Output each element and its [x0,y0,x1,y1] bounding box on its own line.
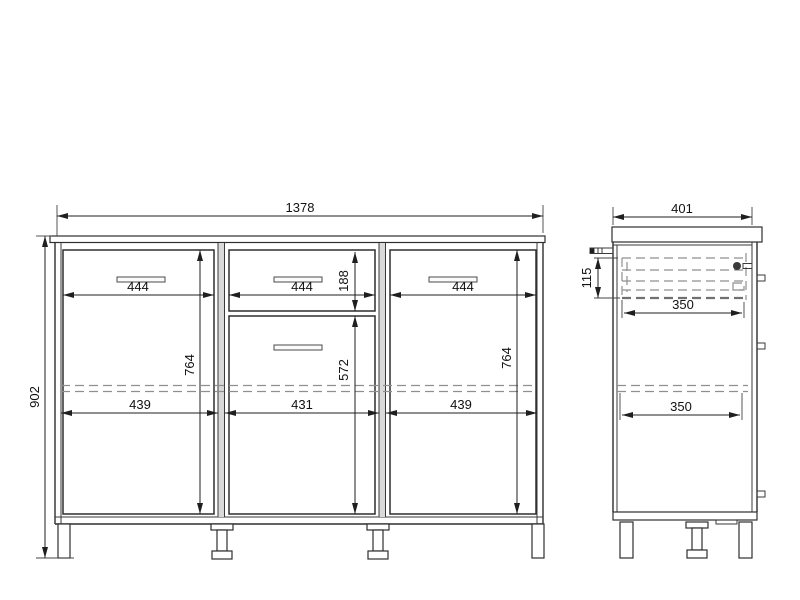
dim-label-572: 572 [336,359,351,381]
dim-overall-depth: 401 [613,201,752,225]
side-back-leg [739,522,752,558]
dim-label-902: 902 [27,386,42,408]
drawer-slide-bracket [733,283,744,290]
side-hinge-tab-middle [757,343,765,349]
front-left-leg [58,524,70,558]
side-legs [620,520,752,558]
side-drawer-handle [590,248,613,254]
cam-screw-icon [733,262,741,270]
front-top-panel [50,236,545,243]
dim-label-444-middle: 444 [291,279,313,294]
front-divider-left [218,243,225,517]
dim-overall-width: 1378 [57,200,543,236]
front-adjustable-foot-2 [367,524,389,559]
side-front-leg [620,522,633,558]
dim-label-439-right: 439 [450,397,472,412]
dim-label-1378: 1378 [286,200,315,215]
front-legs [58,524,544,559]
technical-drawing-canvas: 1378 902 444 444 444 [0,0,800,600]
dim-label-350-top: 350 [672,297,694,312]
dim-label-439-left: 439 [129,397,151,412]
drawing-page: 1378 902 444 444 444 [0,0,800,600]
dim-label-401: 401 [671,201,693,216]
front-adjustable-foot-1 [211,524,233,559]
dim-label-115: 115 [579,268,594,289]
side-carcass [612,227,765,520]
middle-door-handle [274,345,322,350]
front-divider-right [379,243,386,517]
side-shelf-hidden-lines [617,386,748,392]
front-view: 1378 902 444 444 444 [27,200,545,559]
dim-label-431: 431 [291,397,313,412]
dim-shelf-depth: 350 [620,393,742,420]
dim-label-764-left: 764 [182,354,197,376]
dim-label-188: 188 [336,270,351,292]
side-view: 401 115 350 350 [579,201,765,558]
side-hinge-tab-bottom [757,491,765,497]
front-right-leg [532,524,544,558]
side-adjustable-foot [686,522,708,558]
dim-label-764-right: 764 [499,347,514,369]
side-top-panel [612,227,762,242]
dim-drawer-depth: 350 [622,297,744,318]
side-cam-screw [733,262,752,270]
side-hinge-tab-top [757,275,765,281]
dim-label-444-right: 444 [452,279,474,294]
dim-label-350-bottom: 350 [670,399,692,414]
side-bottom-panel [613,512,757,520]
dim-drawer-box-height: 115 [579,258,620,298]
side-drawer-hidden [622,253,746,300]
dim-label-444-left: 444 [127,279,149,294]
